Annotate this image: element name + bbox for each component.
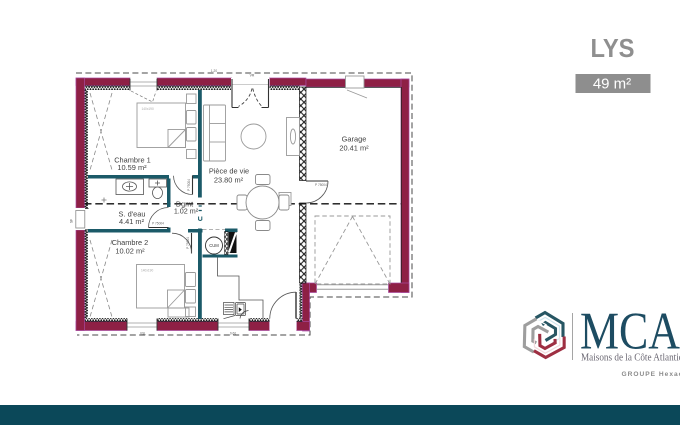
svg-text:10.59 m²: 10.59 m² (117, 163, 147, 172)
svg-text:20.41 m²: 20.41 m² (339, 144, 369, 153)
svg-text:140x190: 140x190 (141, 269, 153, 273)
svg-text:9.60: 9.60 (230, 332, 236, 336)
svg-text:CUM: CUM (209, 243, 219, 248)
svg-text:1.02 m²: 1.02 m² (174, 207, 199, 216)
svg-text:GROUPE Hexaom: GROUPE Hexaom (622, 371, 680, 378)
svg-text:P 75004: P 75004 (152, 222, 164, 226)
svg-text:P 75004: P 75004 (315, 183, 327, 187)
svg-text:P 75004: P 75004 (186, 237, 190, 249)
svg-text:Maisons de la Côte Atlantique: Maisons de la Côte Atlantique (581, 353, 680, 364)
svg-text:49 m²: 49 m² (593, 76, 631, 93)
svg-text:VR: VR (250, 74, 255, 78)
svg-text:1.20: 1.20 (211, 69, 217, 73)
svg-text:23.80 m²: 23.80 m² (214, 176, 244, 185)
svg-text:10.02 m²: 10.02 m² (115, 247, 145, 256)
svg-text:P 75004: P 75004 (187, 179, 191, 191)
svg-text:Garage: Garage (342, 135, 367, 144)
svg-text:140x190: 140x190 (142, 107, 154, 111)
svg-text:4.41 m²: 4.41 m² (119, 217, 145, 226)
svg-text:SF: SF (70, 219, 74, 223)
svg-text:Pièce de vie: Pièce de vie (209, 167, 249, 176)
svg-text:VSL: VSL (140, 332, 146, 336)
svg-text:LYS: LYS (591, 35, 635, 63)
